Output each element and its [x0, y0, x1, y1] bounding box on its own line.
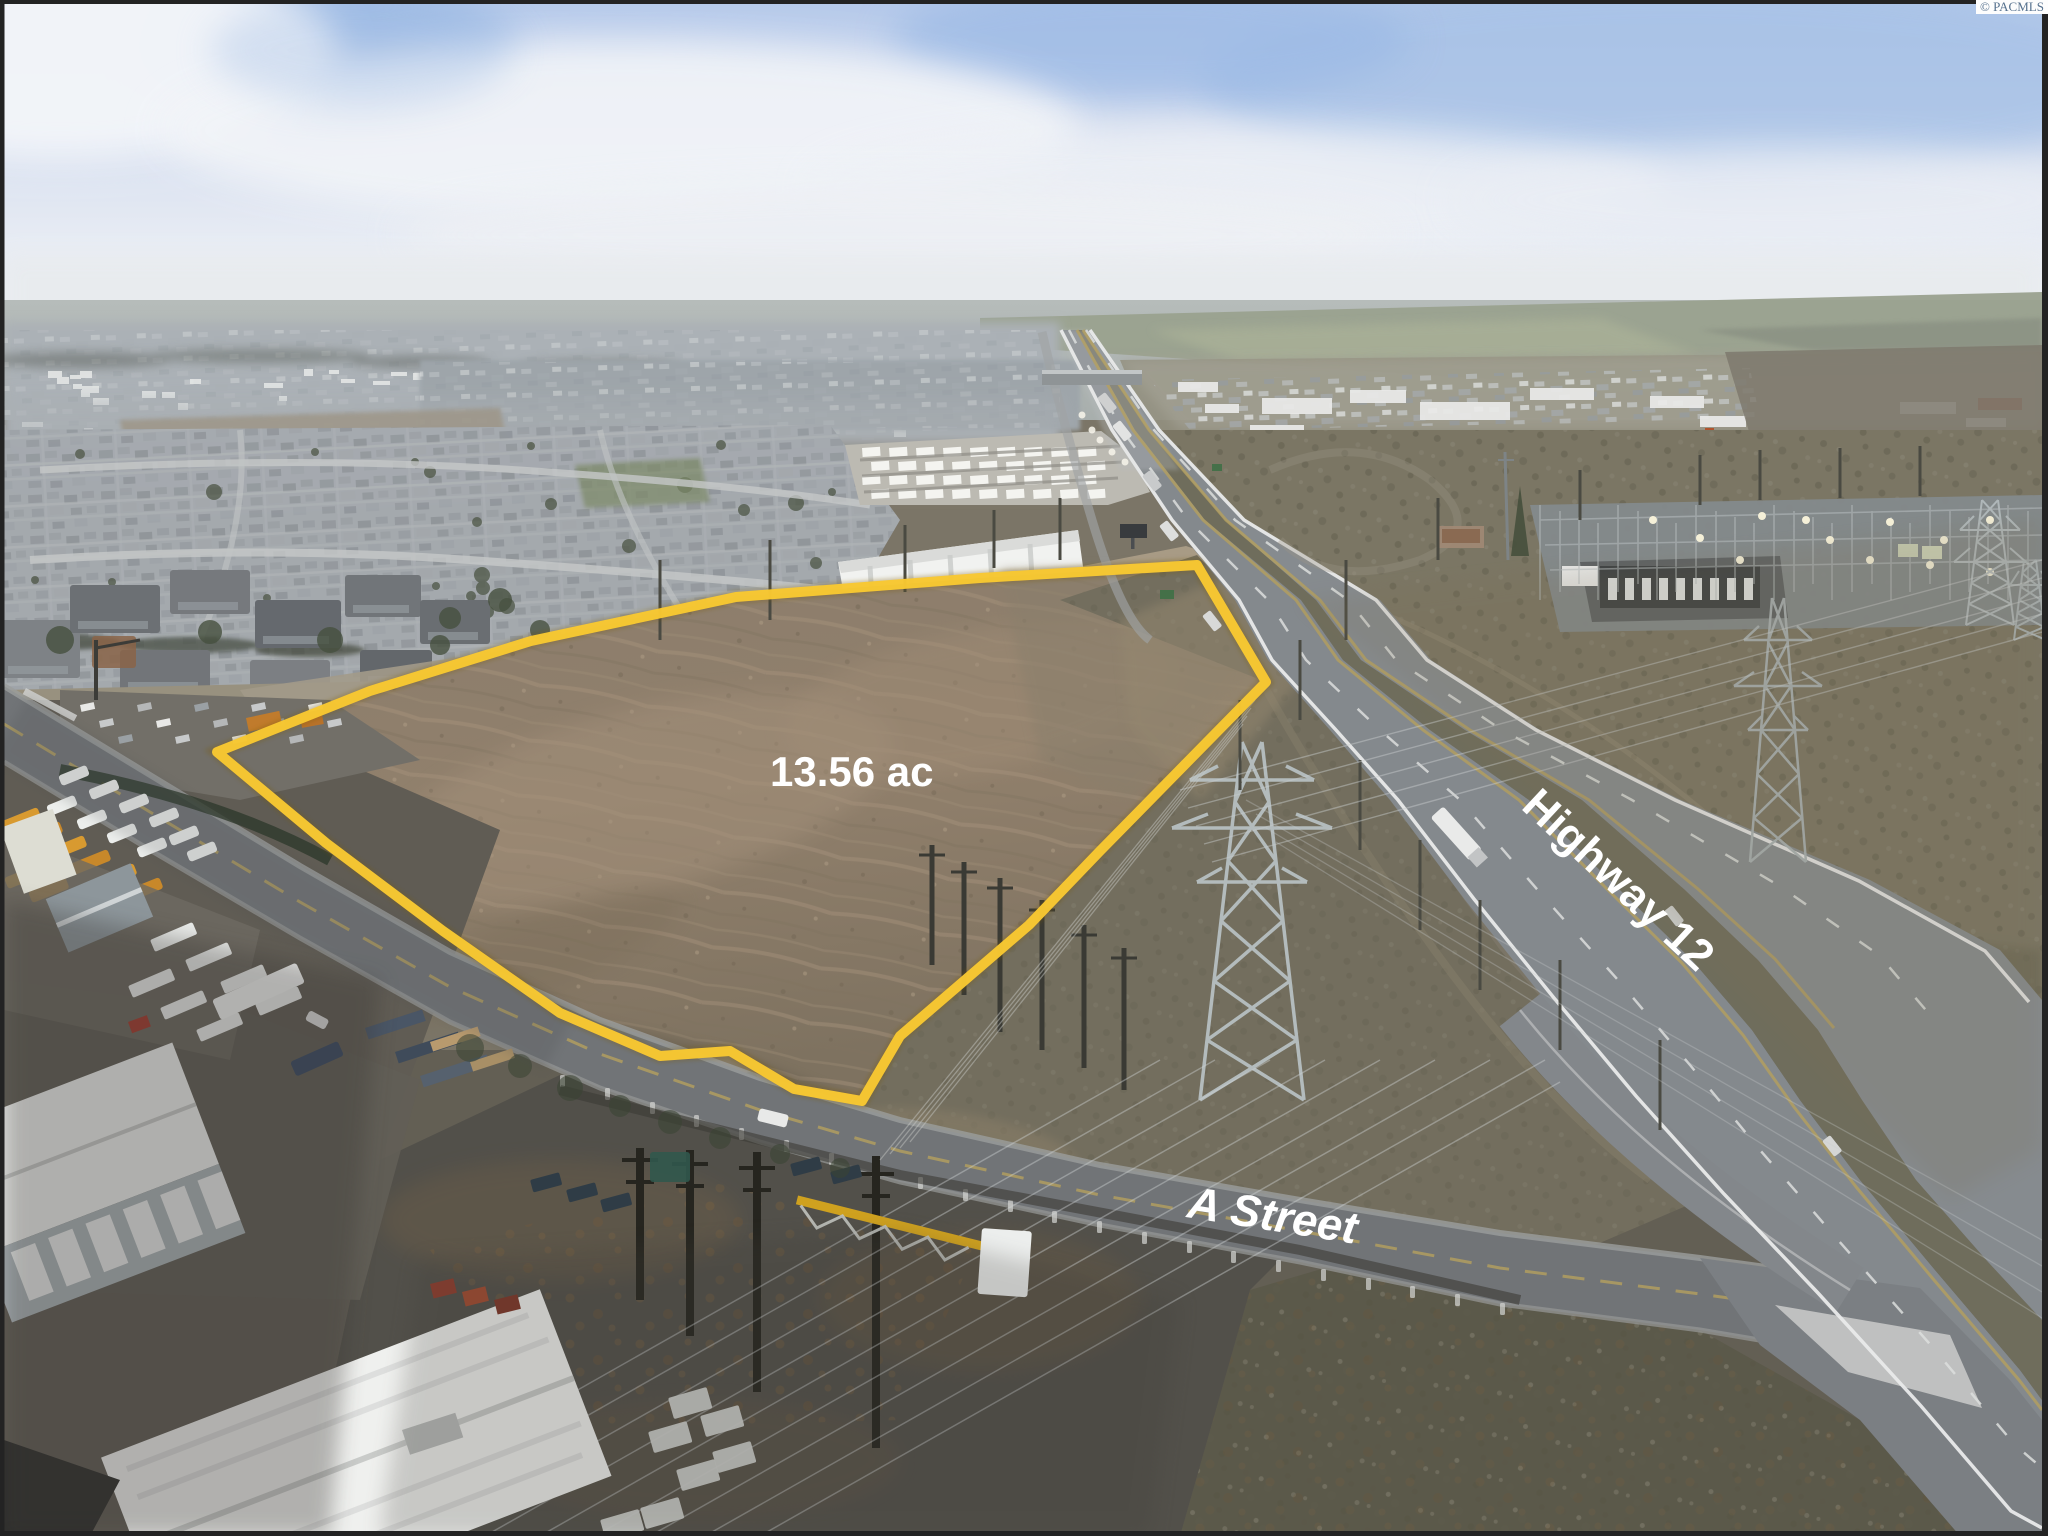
svg-text:© PACMLS: © PACMLS — [1980, 0, 2044, 14]
svg-text:13.56 ac: 13.56 ac — [770, 748, 934, 795]
